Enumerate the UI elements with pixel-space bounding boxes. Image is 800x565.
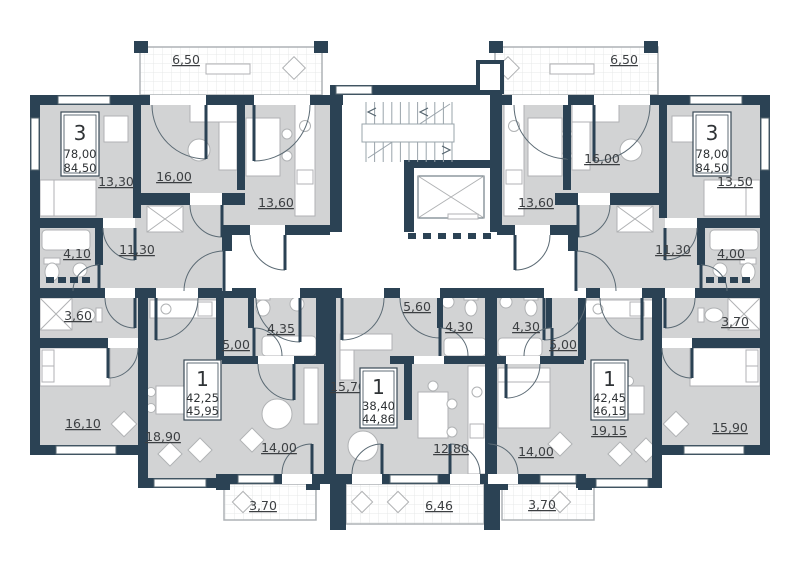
room-label-kitchen-living-1l: 18,90 [145,429,181,444]
apartment-card-1-center: 1 38,40 44,86 [360,368,397,428]
window-icon [238,475,274,483]
room-label-hall-1l: 5,00 [222,337,250,352]
window-icon [336,86,372,94]
room-label-balcony-1r: 3,70 [528,497,556,512]
apartment-rooms-count: 3 [74,121,87,145]
apartment-living-area: 78,00 [64,147,97,161]
room-label-bedroom-1l: 14,00 [261,440,297,455]
window-icon [761,118,769,170]
room-label-balcony-top-left: 6,50 [172,52,200,67]
window-icon [690,96,742,104]
apartment-card-3-left: 3 78,00 84,50 [61,112,99,176]
apartment-card-1-right: 1 42,45 46,15 [591,360,628,420]
room-label-bath-1r: 4,30 [512,319,540,334]
room-label-kitchen-living-1r: 19,15 [591,423,627,438]
elevator-door [448,214,478,219]
window-icon [154,479,206,487]
room-label-kitchen-1c: 12,80 [433,441,469,456]
apartment-rooms-count: 1 [372,375,385,399]
room-label-bedroom-1r: 14,00 [518,444,554,459]
room-label-living-right: 16,00 [584,151,620,166]
floor-plan: 6,50 13,30 16,00 13,60 4,10 11,30 3,60 1… [0,0,800,565]
room-label-bath-1l: 4,35 [267,321,295,336]
sofa-icon [190,104,237,122]
apartment-living-area: 42,45 [593,391,626,405]
dining-table-icon [246,118,280,176]
apartment-living-area: 38,40 [362,399,395,413]
apartment-rooms-count: 1 [196,367,209,391]
window-icon [540,475,576,483]
apartment-rooms-count: 1 [603,367,616,391]
window-icon [390,475,438,483]
apartment-total-area: 45,95 [186,404,219,418]
room-label-wc-right: 3,70 [721,314,749,329]
room-label-balcony-top-right: 6,50 [610,52,638,67]
room-label-kitchen-left: 13,60 [258,195,294,210]
apartment-total-area: 84,50 [696,161,729,175]
apartment-living-area: 42,25 [186,391,219,405]
room-label-bath-left: 4,10 [63,246,91,261]
window-icon [56,446,116,454]
room-label-bath-1c: 4,30 [445,319,473,334]
window-icon [31,118,39,170]
room-label-hall-left: 11,30 [119,242,155,257]
apartment-living-area: 78,00 [696,147,729,161]
room-label-balcony-1l: 3,70 [249,498,277,513]
window-icon [58,96,110,104]
room-label-bath-right: 4,00 [717,246,745,261]
washbasin-icon [73,263,87,277]
room-label-hall-1r: 5,00 [549,337,577,352]
apartment-total-area: 84,50 [64,161,97,175]
window-icon [684,446,744,454]
planter-icon [206,64,250,74]
room-label-hall-right: 11,30 [655,242,691,257]
window-icon [596,479,648,487]
room-label-bedroom1-left: 13,30 [98,174,134,189]
apartment-card-3-right: 3 78,00 84,50 [693,112,731,176]
floor-plan-page: 6,50 13,30 16,00 13,60 4,10 11,30 3,60 1… [0,0,800,565]
stair-landing [362,124,454,142]
sink-icon [300,121,311,132]
apartment-card-1-left: 1 42,25 45,95 [184,360,221,420]
room-label-living-left: 16,00 [156,169,192,184]
room-label-bedroom2-left: 16,10 [65,416,101,431]
corridor-area [232,225,568,298]
apartment-rooms-count: 3 [706,121,719,145]
apartment-total-area: 46,15 [593,404,626,418]
bed-icon [40,180,96,216]
apartment-total-area: 44,86 [362,412,395,426]
desk-icon [104,116,128,142]
room-label-kitchen-right: 13,60 [518,195,554,210]
stove-icon [297,170,313,184]
room-label-wc-left: 3,60 [64,308,92,323]
room-label-hall-1c: 5,60 [403,299,431,314]
room-label-balcony-1c: 6,46 [425,498,453,513]
room-label-bedroom2-right: 15,90 [712,420,748,435]
